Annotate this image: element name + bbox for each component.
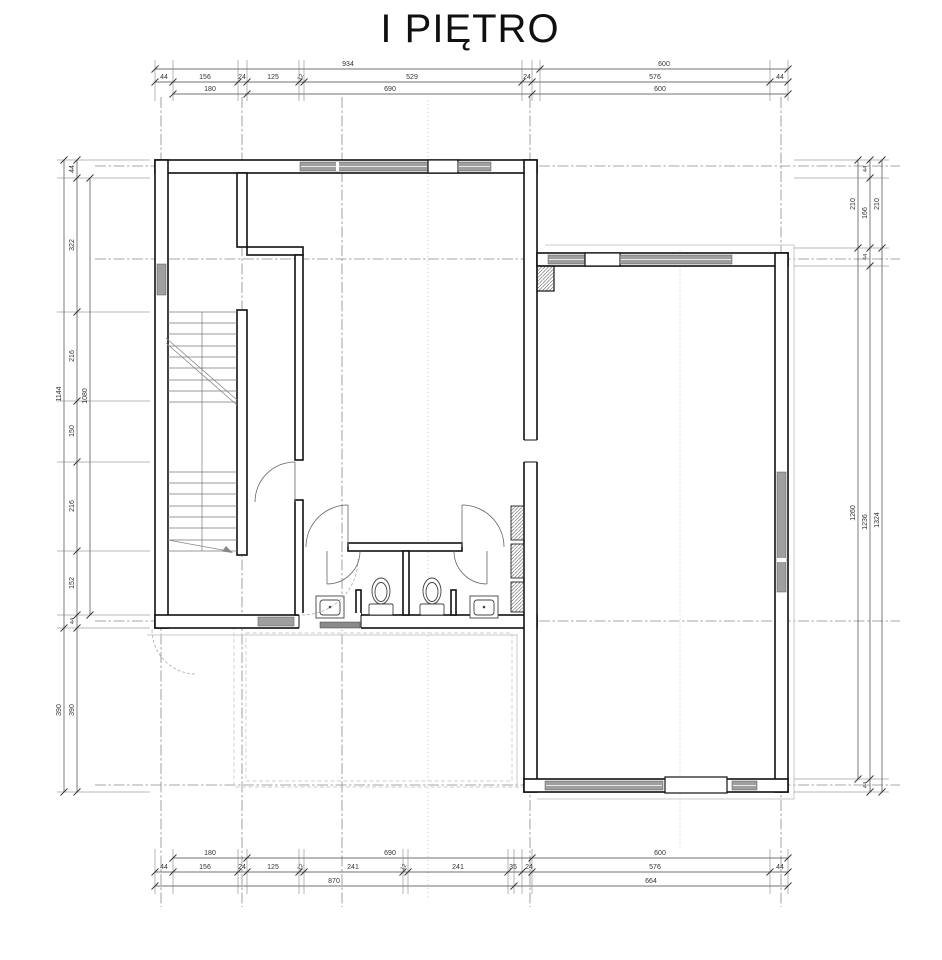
dim-label: 180: [204, 850, 216, 857]
stairs: [166, 312, 237, 553]
dim-label: 44: [776, 74, 784, 81]
wall-opening: [521, 440, 538, 462]
stair-break-line: [166, 338, 237, 405]
dim-label: 390: [56, 704, 63, 716]
sink: [470, 596, 498, 618]
duct-shaft: [511, 506, 524, 540]
interior-wall: [247, 247, 303, 255]
dim-label: 600: [658, 61, 670, 68]
dim-label: 210: [874, 198, 881, 210]
dim-label: 44: [69, 165, 76, 173]
balcony-door-pier: [665, 777, 727, 793]
dim-label: 150: [69, 425, 76, 437]
dim-label: 24: [238, 864, 246, 871]
dim-label: 44: [863, 165, 869, 172]
interior-wall: [295, 500, 303, 615]
dim-label: 24: [238, 74, 246, 81]
dim-label: 576: [649, 864, 661, 871]
dimension-lines: 934 600 44 156 24 125 12 529 24 576 44 1…: [56, 60, 889, 894]
dim-label: 44: [863, 253, 869, 260]
stair-treads: [168, 312, 237, 551]
chimney: [537, 266, 554, 291]
dim-label: 322: [69, 239, 76, 251]
wc-stub-wall: [356, 590, 361, 615]
dim-label: 600: [654, 850, 666, 857]
dim-label: 241: [452, 864, 464, 871]
dim-label: 934: [342, 61, 354, 68]
dim-label: 600: [654, 86, 666, 93]
dim-label: 216: [69, 500, 76, 512]
window-pier: [585, 253, 620, 266]
dim-label: 241: [347, 864, 359, 871]
dim-label: 690: [384, 850, 396, 857]
bathroom-wall: [348, 543, 462, 551]
dim-label: 210: [850, 198, 857, 210]
dim-label: 12: [400, 863, 408, 872]
window: [777, 472, 786, 592]
interior-wall: [237, 173, 247, 247]
door-swing-arc: [255, 462, 504, 584]
interior-wall: [295, 255, 303, 460]
dim-label: 180: [204, 86, 216, 93]
window-pier: [428, 160, 458, 173]
dim-label: 1260: [850, 505, 857, 521]
stair-arrow: [222, 546, 233, 553]
dim-label: 390: [69, 704, 76, 716]
dim-label: 44: [160, 74, 168, 81]
dim-label: 870: [328, 878, 340, 885]
dim-label: 529: [406, 74, 418, 81]
dim-label: 24: [523, 74, 531, 81]
dim-label: 44: [776, 864, 784, 871]
dim-label: 125: [267, 864, 279, 871]
dim-label: 125: [267, 74, 279, 81]
window: [258, 617, 294, 626]
wc-partition: [403, 551, 409, 615]
dim-label: 1236: [862, 514, 869, 530]
page-title: I PIĘTRO: [380, 7, 559, 51]
dim-label: 44: [70, 617, 76, 624]
dim-label: 576: [649, 74, 661, 81]
door-threshold: [320, 622, 360, 628]
dim-label: 152: [69, 577, 76, 589]
duct-shaft: [511, 544, 524, 578]
dim-label: 35: [509, 864, 517, 871]
main-west-wall: [155, 160, 168, 628]
dimension-line: [64, 69, 882, 886]
dim-label: 1080: [82, 388, 89, 404]
dim-label: 44: [863, 781, 869, 788]
stair-wall: [237, 310, 247, 555]
window: [157, 264, 166, 295]
duct-shaft: [511, 582, 524, 612]
dim-label: 1324: [874, 512, 881, 528]
dim-label: 664: [645, 878, 657, 885]
dim-label: 156: [199, 864, 211, 871]
dim-label: 44: [160, 864, 168, 871]
stair-walk-line: [168, 540, 228, 551]
wc-stub-wall: [451, 590, 456, 615]
toilet: [369, 578, 393, 615]
floor-plan-drawing: I PIĘTRO: [0, 0, 942, 960]
floor-plan-page: I PIĘTRO: [0, 0, 942, 960]
dim-label: 216: [69, 350, 76, 362]
dim-label: 156: [199, 74, 211, 81]
sink: [316, 596, 344, 618]
dim-label: 24: [525, 864, 533, 871]
dim-label: 690: [384, 86, 396, 93]
toilet: [420, 578, 444, 615]
dim-label: 1144: [56, 386, 63, 401]
dim-label: 166: [862, 207, 869, 219]
main-east-wall: [524, 160, 537, 792]
